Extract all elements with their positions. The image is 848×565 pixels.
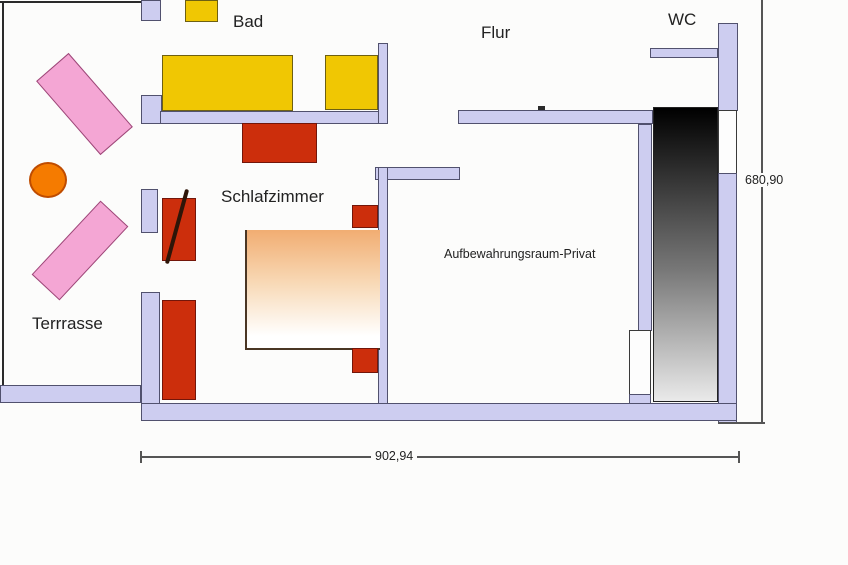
round-table [29, 162, 67, 198]
room-label-aufbewahrungsraum: Aufbewahrungsraum-Privat [444, 248, 595, 262]
wall-right-upper [718, 23, 738, 111]
dim-tick-vertical-bottom [718, 422, 765, 424]
lounger-lower [32, 201, 129, 301]
dresser-below-wall [242, 123, 317, 163]
lounger-upper [36, 53, 133, 155]
wall-schlafzimmer-left-upper [141, 189, 158, 233]
terrace-top-edge [0, 1, 141, 3]
window-right-wall [718, 110, 737, 174]
wall-bottom-main [141, 403, 737, 421]
dim-tick-horizontal-right [738, 451, 740, 463]
bath-cabinet-right [325, 55, 378, 110]
wall-flur-notch [538, 106, 545, 110]
wall-top-left-block [141, 0, 161, 21]
wall-storage-right [638, 124, 652, 331]
wall-left-mid-block [141, 95, 162, 124]
dim-width-label: 902,94 [371, 449, 417, 463]
stair-shaft [653, 107, 718, 402]
bed [245, 230, 380, 350]
terrace-left-edge [2, 3, 4, 395]
dim-line-horizontal [141, 456, 739, 458]
wardrobe-lower-left [162, 300, 196, 400]
wall-terrace-bottom [0, 385, 141, 403]
room-label-bad: Bad [233, 13, 263, 32]
bathtub-large [162, 55, 293, 111]
room-label-terrasse: Terrrasse [32, 315, 103, 334]
bath-cabinet-small [185, 0, 218, 22]
room-label-schlafzimmer: Schlafzimmer [221, 188, 324, 207]
nightstand-top [352, 205, 378, 228]
floor-plan: Bad Flur WC Schlafzimmer Terrrasse Aufbe… [0, 0, 848, 565]
wall-flur-top [458, 110, 653, 124]
room-label-flur: Flur [481, 24, 510, 43]
wall-right-lower [718, 173, 737, 423]
nightstand-bottom [352, 348, 378, 373]
wall-bedroom-right-upper [378, 43, 388, 124]
dim-height-label: 680,90 [741, 173, 787, 187]
wall-schlafzimmer-left-lower [141, 292, 160, 404]
dim-line-vertical [761, 0, 763, 422]
dim-tick-horizontal-left [140, 451, 142, 463]
door-opening-storage [629, 330, 651, 396]
wall-wc-shelf [650, 48, 718, 58]
room-label-wc: WC [668, 11, 696, 30]
